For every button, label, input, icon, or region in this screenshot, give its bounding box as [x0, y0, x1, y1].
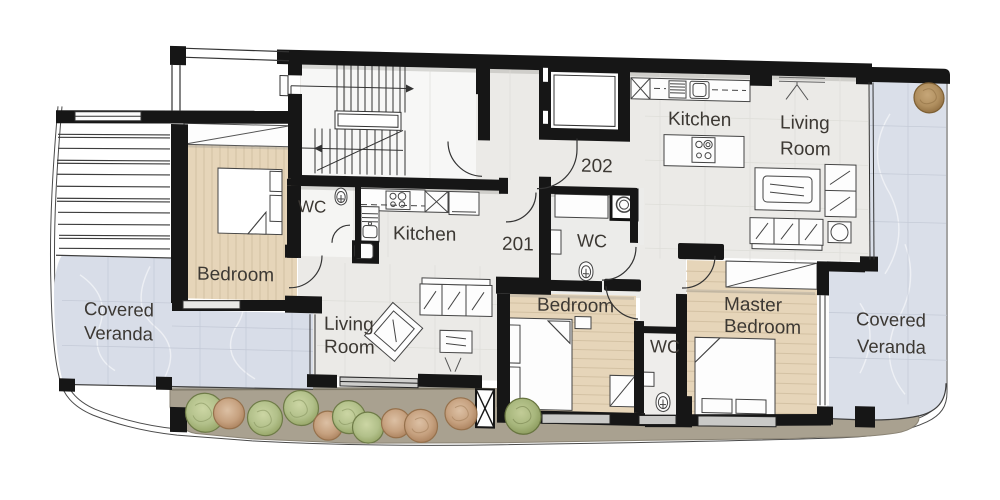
svg-text:Kitchen: Kitchen [668, 109, 731, 131]
svg-text:Veranda: Veranda [84, 322, 154, 345]
svg-text:Bedroom: Bedroom [537, 295, 614, 318]
svg-text:Kitchen: Kitchen [393, 223, 456, 245]
svg-text:Living: Living [324, 314, 374, 336]
svg-text:Veranda: Veranda [857, 335, 927, 358]
svg-text:201: 201 [502, 234, 534, 256]
svg-text:Bedroom: Bedroom [724, 316, 801, 339]
svg-text:Covered: Covered [84, 298, 154, 321]
svg-text:Room: Room [324, 337, 375, 359]
svg-text:WC: WC [650, 336, 680, 357]
svg-text:202: 202 [581, 156, 613, 178]
svg-text:WC: WC [577, 231, 607, 252]
svg-text:Living: Living [780, 112, 830, 134]
svg-text:Room: Room [780, 138, 831, 160]
svg-text:Covered: Covered [856, 308, 926, 331]
svg-text:Bedroom: Bedroom [197, 264, 274, 287]
svg-text:Master: Master [724, 294, 783, 316]
svg-text:WC: WC [298, 197, 326, 217]
